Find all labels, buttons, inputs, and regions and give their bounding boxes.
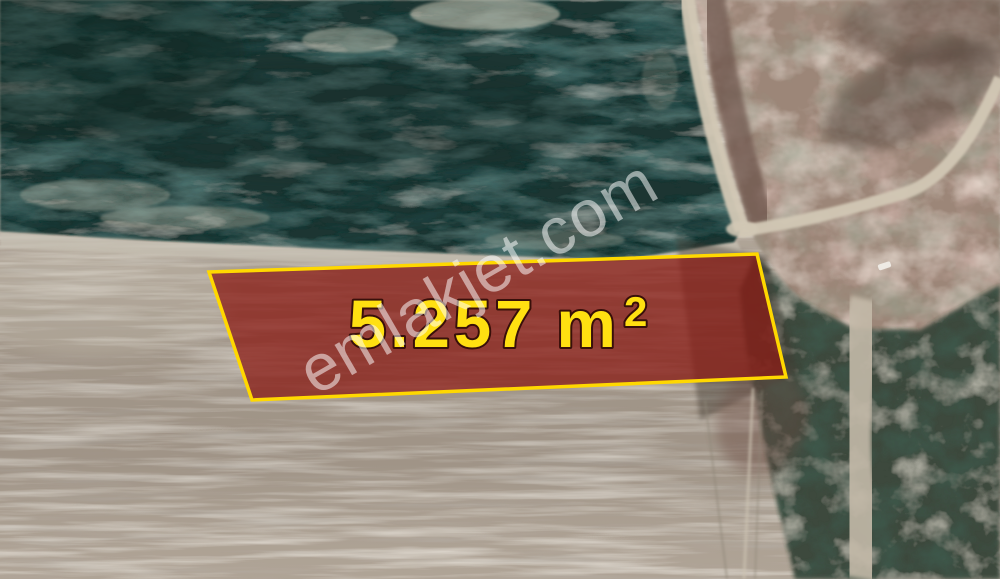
aerial-photo-canvas: 5.257m2 emlakjet.com xyxy=(0,0,1000,579)
aerial-photo: 5.257m2 emlakjet.com xyxy=(0,0,1000,579)
dirt-road-south xyxy=(852,300,870,579)
area-superscript: 2 xyxy=(624,288,651,335)
road-junction xyxy=(726,221,758,237)
area-unit: m xyxy=(556,287,620,362)
